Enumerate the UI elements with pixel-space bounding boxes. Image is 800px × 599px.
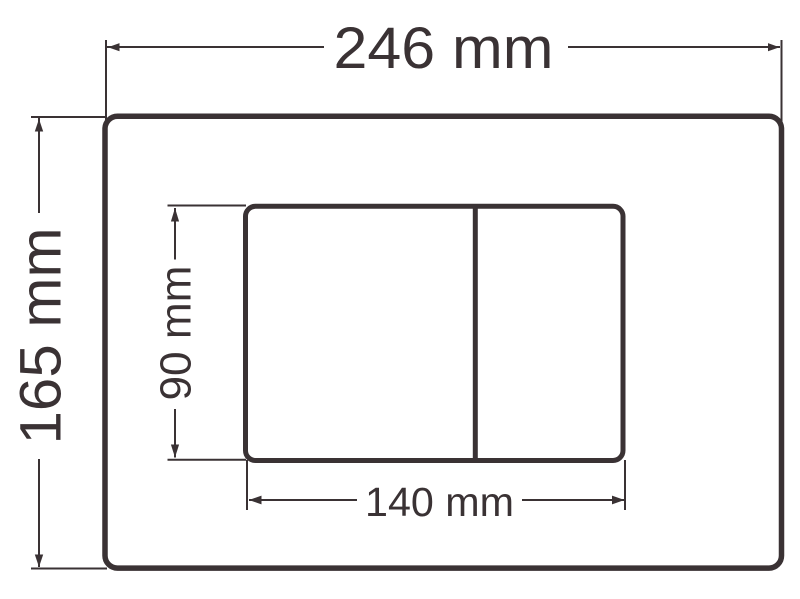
svg-text:246 mm: 246 mm [334, 16, 554, 81]
svg-text:140 mm: 140 mm [365, 479, 514, 525]
svg-text:165 mm: 165 mm [9, 228, 74, 445]
svg-text:90 mm: 90 mm [152, 266, 201, 401]
